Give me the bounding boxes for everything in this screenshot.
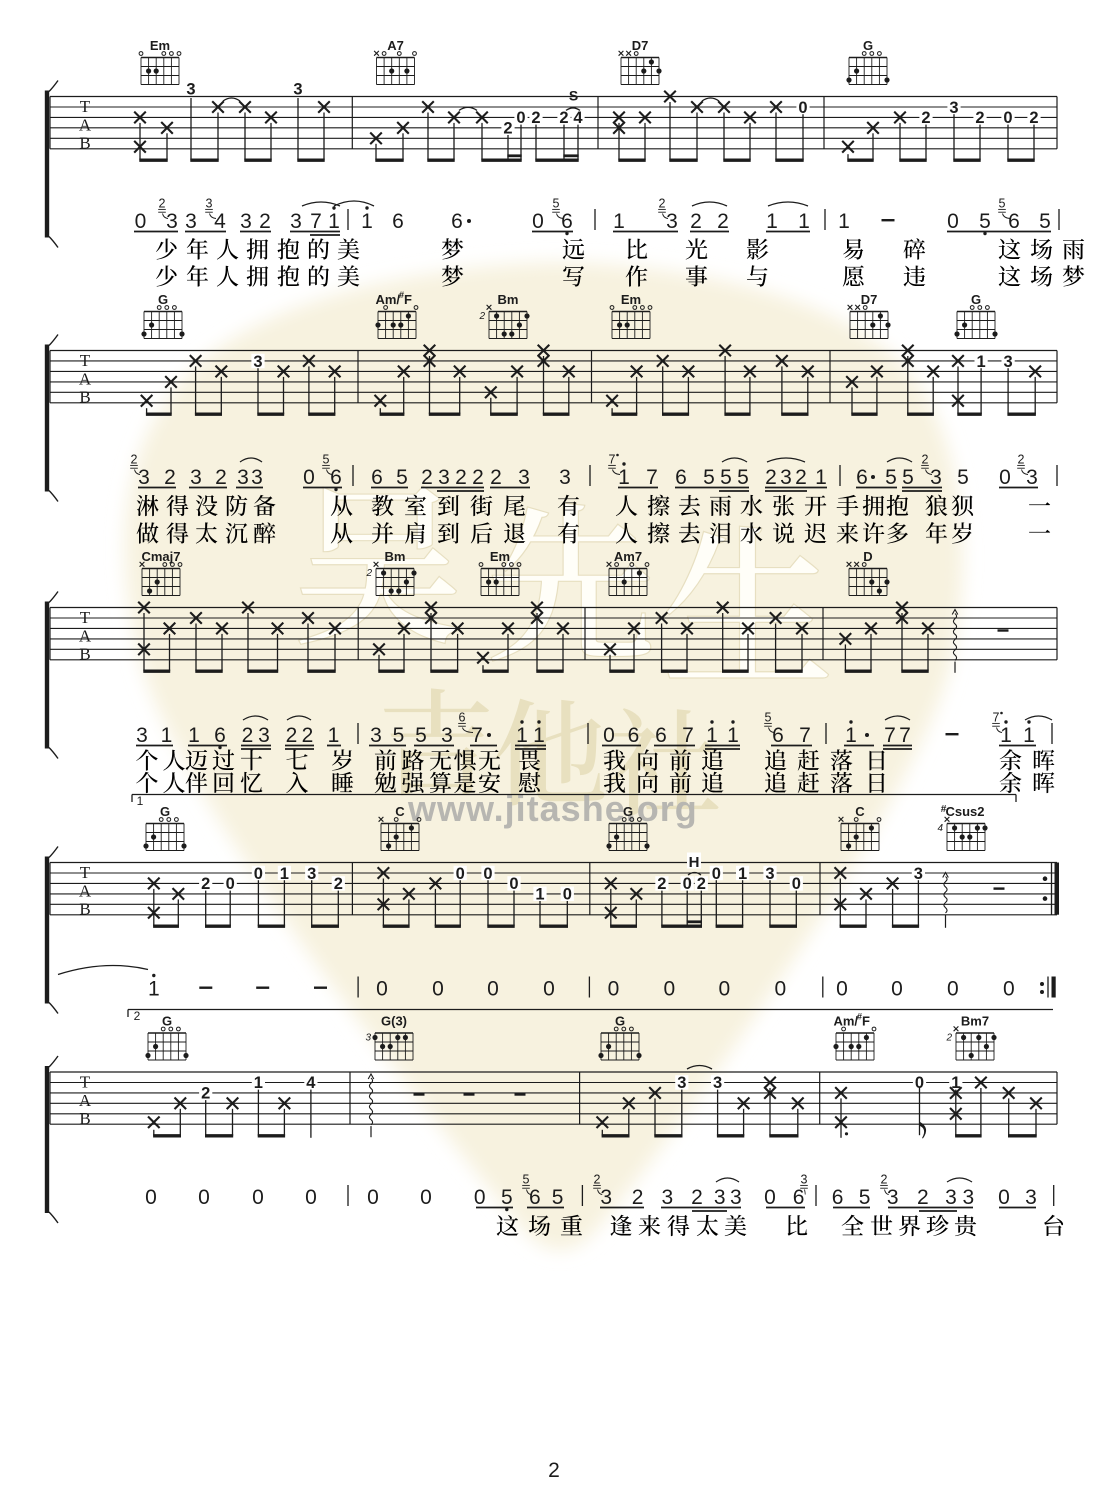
- svg-text:3: 3: [914, 865, 923, 883]
- svg-text:7: 7: [884, 724, 896, 747]
- svg-text:6: 6: [628, 724, 640, 747]
- svg-text:Bm7: Bm7: [961, 1014, 989, 1029]
- svg-text:3: 3: [185, 210, 197, 233]
- svg-text:6: 6: [655, 724, 667, 747]
- svg-text:7: 7: [609, 453, 616, 467]
- svg-text:4: 4: [214, 210, 226, 233]
- svg-text:3: 3: [518, 466, 530, 489]
- svg-text:3: 3: [240, 210, 252, 233]
- svg-text:0: 0: [135, 210, 147, 233]
- svg-text:3: 3: [166, 210, 178, 233]
- svg-text:F: F: [404, 292, 412, 307]
- svg-text:3: 3: [600, 1186, 612, 1209]
- svg-text:0: 0: [764, 1186, 776, 1209]
- svg-text:3: 3: [730, 1186, 742, 1209]
- svg-text:D: D: [863, 549, 872, 564]
- svg-text:A: A: [79, 370, 92, 389]
- svg-text:3: 3: [677, 1074, 686, 1092]
- svg-text:2: 2: [881, 1173, 888, 1187]
- svg-text:T: T: [80, 1073, 91, 1092]
- svg-text:3: 3: [136, 724, 148, 747]
- svg-text:3: 3: [801, 1173, 808, 1187]
- svg-text:6: 6: [793, 1186, 805, 1209]
- svg-text:7: 7: [682, 724, 694, 747]
- svg-text:1: 1: [533, 724, 545, 747]
- svg-text:3: 3: [963, 1186, 975, 1209]
- svg-text:0: 0: [432, 978, 444, 1001]
- svg-text:0: 0: [305, 1186, 317, 1209]
- svg-text:3: 3: [258, 724, 270, 747]
- svg-text:0: 0: [487, 978, 499, 1001]
- svg-text:2: 2: [159, 197, 166, 211]
- svg-text:3: 3: [930, 466, 942, 489]
- svg-text:6: 6: [371, 466, 383, 489]
- svg-text:1: 1: [738, 865, 747, 883]
- svg-text:5: 5: [957, 466, 969, 489]
- svg-text:6: 6: [561, 210, 573, 233]
- svg-text:2: 2: [691, 1186, 703, 1209]
- svg-text:5: 5: [885, 466, 897, 489]
- svg-text:3: 3: [1025, 1186, 1037, 1209]
- svg-text:2: 2: [201, 1085, 210, 1103]
- svg-text:0: 0: [563, 886, 572, 904]
- svg-text:#: #: [857, 1012, 862, 1022]
- svg-text:3: 3: [887, 1186, 899, 1209]
- svg-text:2: 2: [548, 1459, 560, 1482]
- svg-text:1: 1: [706, 724, 718, 747]
- svg-text:2: 2: [134, 1009, 141, 1023]
- svg-text:2: 2: [472, 466, 484, 489]
- svg-text:5: 5: [396, 466, 408, 489]
- svg-text:0: 0: [947, 210, 959, 233]
- svg-text:3: 3: [293, 81, 302, 99]
- svg-text:0: 0: [792, 875, 801, 893]
- svg-text:#: #: [399, 290, 404, 300]
- svg-text:0: 0: [456, 865, 465, 883]
- svg-text:1: 1: [148, 978, 160, 1001]
- svg-text:5: 5: [765, 711, 772, 725]
- svg-text:S: S: [569, 88, 578, 104]
- svg-text:2: 2: [690, 210, 702, 233]
- svg-text:4: 4: [937, 823, 943, 834]
- svg-text:5: 5: [720, 466, 732, 489]
- svg-text:5: 5: [552, 1186, 564, 1209]
- svg-text:0: 0: [252, 1186, 264, 1209]
- svg-text:1: 1: [1000, 724, 1012, 747]
- svg-text:A: A: [79, 882, 92, 901]
- svg-text:2: 2: [975, 109, 984, 127]
- svg-text:5: 5: [415, 724, 427, 747]
- svg-text:1: 1: [535, 886, 544, 904]
- svg-text:2: 2: [945, 1033, 952, 1044]
- svg-text:3: 3: [714, 1186, 726, 1209]
- svg-text:T: T: [80, 97, 91, 116]
- svg-text:0: 0: [719, 978, 731, 1001]
- svg-text:7: 7: [310, 210, 322, 233]
- svg-text:3: 3: [765, 865, 774, 883]
- svg-text:0: 0: [303, 466, 315, 489]
- svg-text:Am7: Am7: [614, 549, 642, 564]
- svg-text:A: A: [79, 627, 92, 646]
- svg-text:6: 6: [529, 1186, 541, 1209]
- svg-text:2: 2: [455, 466, 467, 489]
- svg-text:B: B: [79, 134, 90, 153]
- svg-text:B: B: [79, 645, 90, 664]
- svg-text:0: 0: [999, 466, 1011, 489]
- svg-text:3: 3: [253, 353, 262, 371]
- svg-text:1: 1: [361, 210, 373, 233]
- svg-text:2: 2: [559, 109, 568, 127]
- svg-text:2: 2: [259, 210, 271, 233]
- svg-text:Em: Em: [150, 38, 170, 53]
- svg-text:1: 1: [328, 724, 340, 747]
- svg-text:3: 3: [666, 210, 678, 233]
- svg-text:C: C: [395, 804, 405, 819]
- svg-text:5: 5: [393, 724, 405, 747]
- svg-text:Cmaj7: Cmaj7: [141, 549, 180, 564]
- svg-text:D7: D7: [632, 38, 649, 53]
- svg-text:A: A: [79, 1091, 92, 1110]
- svg-text:3: 3: [559, 466, 571, 489]
- svg-text:0: 0: [516, 109, 525, 127]
- svg-text:1: 1: [977, 353, 986, 371]
- svg-text:1: 1: [161, 724, 173, 747]
- svg-text:6: 6: [214, 724, 226, 747]
- svg-text:1: 1: [845, 724, 857, 747]
- svg-text:3: 3: [1026, 466, 1038, 489]
- svg-text:1: 1: [798, 210, 810, 233]
- svg-text:0: 0: [376, 978, 388, 1001]
- svg-text:0: 0: [420, 1186, 432, 1209]
- svg-text:Am/: Am/: [833, 1014, 858, 1029]
- svg-text:0: 0: [543, 978, 555, 1001]
- svg-text:1: 1: [254, 1074, 263, 1092]
- svg-text:2: 2: [657, 875, 666, 893]
- svg-text:4: 4: [306, 1074, 316, 1092]
- svg-text:2: 2: [242, 724, 254, 747]
- svg-text:0: 0: [683, 875, 692, 893]
- svg-text:0: 0: [891, 978, 903, 1001]
- svg-text:B: B: [79, 1109, 90, 1128]
- svg-text:2: 2: [1029, 109, 1038, 127]
- svg-text:0: 0: [947, 978, 959, 1001]
- svg-text:2: 2: [421, 466, 433, 489]
- svg-text:B: B: [79, 900, 90, 919]
- svg-text:5: 5: [323, 453, 330, 467]
- svg-text:7: 7: [646, 466, 658, 489]
- svg-text:7: 7: [471, 724, 483, 747]
- svg-text:3: 3: [138, 466, 150, 489]
- svg-text:0: 0: [254, 865, 263, 883]
- svg-text:2: 2: [201, 875, 210, 893]
- svg-text:D7: D7: [861, 292, 878, 307]
- svg-text:2: 2: [531, 109, 540, 127]
- svg-text:G: G: [971, 292, 981, 307]
- svg-text:G(3): G(3): [381, 1014, 407, 1029]
- svg-text:#: #: [941, 804, 947, 815]
- svg-text:2: 2: [478, 311, 485, 322]
- svg-text:5: 5: [737, 466, 749, 489]
- svg-text:2: 2: [131, 453, 138, 467]
- svg-text:0: 0: [603, 724, 615, 747]
- svg-text:C: C: [855, 804, 865, 819]
- svg-text:0: 0: [774, 978, 786, 1001]
- svg-text:6: 6: [392, 210, 404, 233]
- svg-text:A: A: [79, 116, 92, 135]
- svg-text:3: 3: [190, 466, 202, 489]
- svg-text:2: 2: [286, 724, 298, 747]
- svg-text:3: 3: [237, 466, 249, 489]
- svg-text:0: 0: [226, 875, 235, 893]
- svg-text:0: 0: [664, 978, 676, 1001]
- svg-text:1: 1: [328, 210, 340, 233]
- svg-text:0: 0: [1003, 978, 1015, 1001]
- svg-text:2: 2: [302, 724, 314, 747]
- svg-text:1: 1: [1023, 724, 1035, 747]
- svg-text:2: 2: [1018, 453, 1025, 467]
- svg-text:6: 6: [330, 466, 342, 489]
- svg-text:5: 5: [859, 1186, 871, 1209]
- svg-text:7: 7: [993, 711, 1000, 725]
- svg-text:2: 2: [594, 1173, 601, 1187]
- svg-text:2: 2: [922, 453, 929, 467]
- svg-text:G: G: [162, 1014, 172, 1029]
- svg-text:3: 3: [1004, 353, 1013, 371]
- svg-text:Am/: Am/: [375, 292, 400, 307]
- svg-text:5: 5: [902, 466, 914, 489]
- svg-text:3: 3: [206, 197, 213, 211]
- svg-text:3: 3: [780, 466, 792, 489]
- svg-text:0: 0: [367, 1186, 379, 1209]
- svg-text:3: 3: [370, 724, 382, 747]
- svg-text:2: 2: [795, 466, 807, 489]
- svg-text:5: 5: [1039, 210, 1051, 233]
- svg-text:1: 1: [618, 466, 630, 489]
- svg-text:3: 3: [251, 466, 263, 489]
- svg-text:1: 1: [727, 724, 739, 747]
- svg-text:2: 2: [921, 109, 930, 127]
- svg-text:B: B: [79, 388, 90, 407]
- svg-text:2: 2: [215, 466, 227, 489]
- svg-text:5: 5: [703, 466, 715, 489]
- svg-text:1: 1: [280, 865, 289, 883]
- svg-text:G: G: [158, 292, 168, 307]
- svg-text:0: 0: [483, 865, 492, 883]
- svg-text:H: H: [689, 854, 700, 871]
- svg-text:3: 3: [290, 210, 302, 233]
- svg-text:2: 2: [659, 197, 666, 211]
- svg-text:4: 4: [573, 109, 583, 127]
- svg-text:T: T: [80, 351, 91, 370]
- svg-text:Em: Em: [490, 549, 510, 564]
- svg-text:5: 5: [523, 1173, 530, 1187]
- svg-text:1: 1: [516, 724, 528, 747]
- svg-text:1: 1: [613, 210, 625, 233]
- svg-text:6: 6: [856, 466, 868, 489]
- svg-text:1: 1: [815, 466, 827, 489]
- svg-text:6: 6: [451, 210, 463, 233]
- svg-text:2: 2: [632, 1186, 644, 1209]
- svg-text:5: 5: [553, 197, 560, 211]
- svg-text:1: 1: [838, 210, 850, 233]
- svg-text:0: 0: [474, 1186, 486, 1209]
- svg-text:7: 7: [799, 724, 811, 747]
- svg-text:0: 0: [532, 210, 544, 233]
- svg-text:7: 7: [899, 724, 911, 747]
- svg-text:G: G: [863, 38, 873, 53]
- svg-text:2: 2: [164, 466, 176, 489]
- svg-text:2: 2: [765, 466, 777, 489]
- svg-text:T: T: [80, 608, 91, 627]
- svg-text:2: 2: [717, 210, 729, 233]
- svg-text:6: 6: [832, 1186, 844, 1209]
- svg-text:0: 0: [1003, 109, 1012, 127]
- svg-text:3: 3: [441, 724, 453, 747]
- svg-text:2: 2: [334, 875, 343, 893]
- svg-text:G: G: [615, 1014, 625, 1029]
- svg-text:0: 0: [608, 978, 620, 1001]
- svg-text:2: 2: [503, 120, 512, 138]
- svg-text:6: 6: [459, 711, 466, 725]
- svg-text:1: 1: [766, 210, 778, 233]
- svg-text:1: 1: [137, 794, 144, 808]
- svg-text:0: 0: [145, 1186, 157, 1209]
- svg-text:5: 5: [999, 197, 1006, 211]
- svg-text:F: F: [862, 1014, 870, 1029]
- svg-text:3: 3: [661, 1186, 673, 1209]
- svg-text:3: 3: [438, 466, 450, 489]
- svg-text:3: 3: [949, 99, 958, 117]
- svg-text:0: 0: [998, 1186, 1010, 1209]
- svg-text:3: 3: [713, 1074, 722, 1092]
- svg-text:3: 3: [365, 1033, 371, 1044]
- svg-text:Bm: Bm: [385, 549, 406, 564]
- svg-text:6: 6: [772, 724, 784, 747]
- svg-text:2: 2: [365, 568, 372, 579]
- svg-text:0: 0: [798, 99, 807, 117]
- svg-text:2: 2: [697, 875, 706, 893]
- svg-text:T: T: [80, 863, 91, 882]
- svg-text:2: 2: [490, 466, 502, 489]
- svg-text:0: 0: [509, 875, 518, 893]
- svg-text:G: G: [160, 804, 170, 819]
- svg-text:Em: Em: [621, 292, 641, 307]
- svg-text:5: 5: [979, 210, 991, 233]
- svg-text:1: 1: [188, 724, 200, 747]
- svg-text:0: 0: [198, 1186, 210, 1209]
- svg-text:5: 5: [501, 1186, 513, 1209]
- svg-text:3: 3: [186, 81, 195, 99]
- svg-text:A7: A7: [387, 38, 404, 53]
- svg-text:2: 2: [917, 1186, 929, 1209]
- svg-text:6: 6: [675, 466, 687, 489]
- svg-text:0: 0: [836, 978, 848, 1001]
- svg-text:3: 3: [307, 865, 316, 883]
- svg-text:0: 0: [712, 865, 721, 883]
- svg-text:3: 3: [945, 1186, 957, 1209]
- svg-text:6: 6: [1008, 210, 1020, 233]
- svg-text:Csus2: Csus2: [945, 804, 984, 819]
- svg-text:Bm: Bm: [498, 292, 519, 307]
- svg-text:G: G: [623, 804, 633, 819]
